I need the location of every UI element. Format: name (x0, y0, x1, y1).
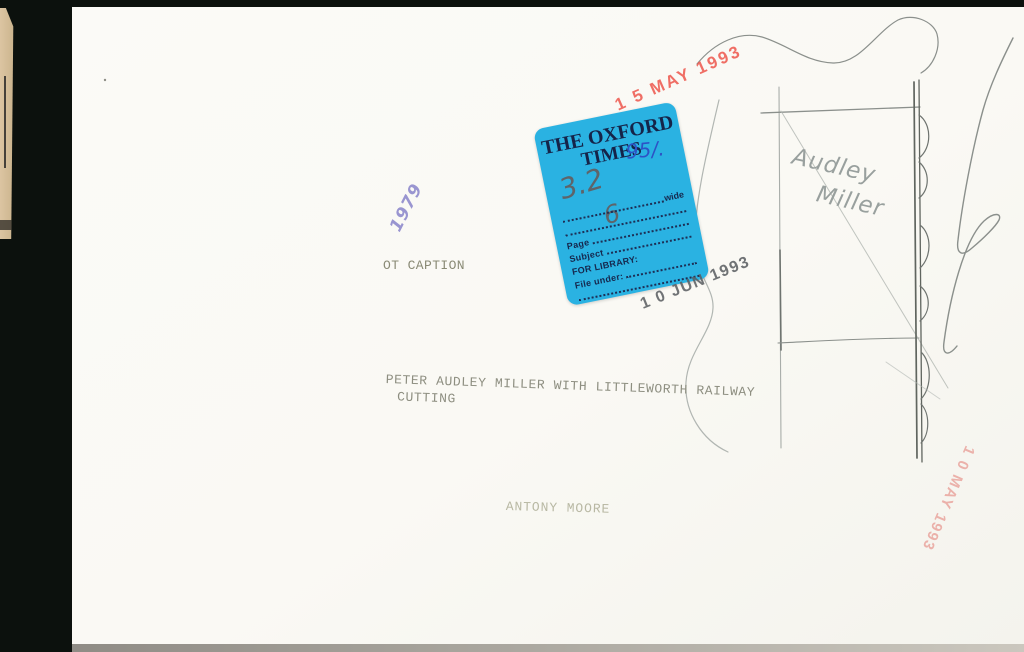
paper-speck (104, 79, 106, 81)
film-strip-band (0, 220, 14, 230)
pencil-crop-frame (761, 80, 948, 462)
pen-note: 95/. (625, 136, 666, 164)
mount-background: OT CAPTION PETER AUDLEY MILLER WITH LITT… (0, 0, 1024, 652)
film-strip-fragment (0, 8, 14, 239)
pencil-sketch (72, 7, 1024, 644)
film-strip-mark (4, 76, 6, 168)
pencil-squiggle-right (944, 38, 1013, 353)
paper-bottom-edge (72, 644, 1024, 652)
ot-caption-text: OT CAPTION (383, 258, 465, 273)
photographer-credit-text: ANTONY MOORE (506, 499, 611, 517)
photo-verso-paper: OT CAPTION PETER AUDLEY MILLER WITH LITT… (72, 7, 1024, 644)
